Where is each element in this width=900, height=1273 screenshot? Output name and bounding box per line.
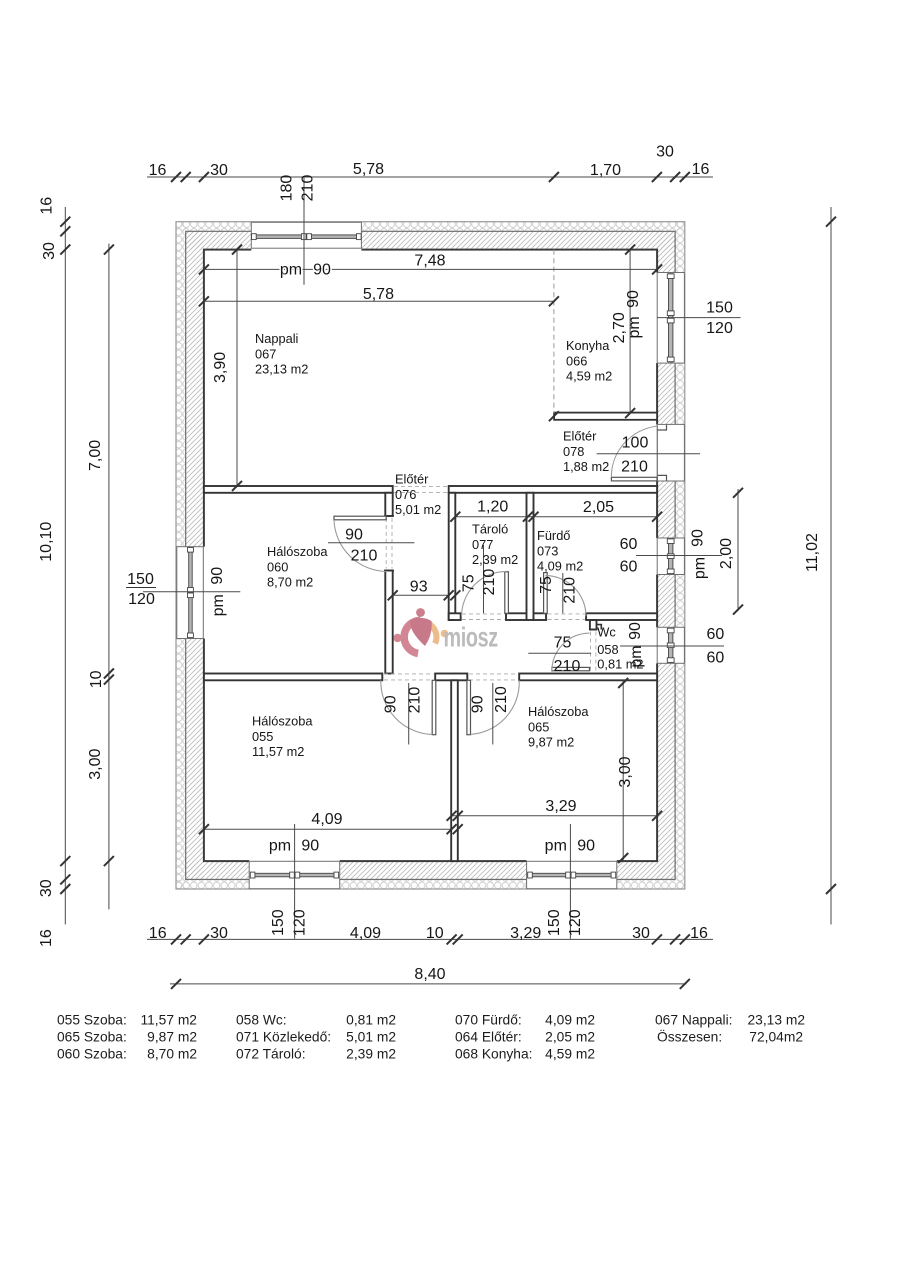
svg-text:pm: pm: [626, 316, 643, 338]
svg-text:pm: pm: [269, 838, 291, 855]
svg-text:4,09: 4,09: [311, 811, 342, 828]
svg-text:055: 055: [252, 729, 273, 744]
svg-text:060 Szoba:: 060 Szoba:: [57, 1047, 127, 1062]
svg-text:93: 93: [410, 579, 428, 596]
svg-text:058: 058: [597, 642, 618, 657]
svg-text:11,02: 11,02: [804, 533, 821, 572]
svg-text:210: 210: [621, 458, 648, 475]
svg-text:120: 120: [128, 591, 155, 608]
svg-text:4,59 m2: 4,59 m2: [566, 369, 612, 384]
svg-text:16: 16: [38, 929, 55, 947]
svg-text:90: 90: [577, 838, 595, 855]
svg-text:180: 180: [279, 175, 296, 202]
svg-text:120: 120: [291, 909, 308, 936]
svg-text:pm: pm: [280, 261, 302, 278]
svg-text:72,04m2: 72,04m2: [749, 1030, 803, 1045]
svg-text:5,01 m2: 5,01 m2: [395, 502, 441, 517]
svg-text:2,00: 2,00: [718, 538, 735, 569]
svg-text:30: 30: [632, 925, 650, 942]
svg-text:90: 90: [469, 695, 486, 713]
svg-text:8,40: 8,40: [414, 966, 445, 983]
svg-text:072 Tároló:: 072 Tároló:: [236, 1047, 306, 1062]
svg-text:077: 077: [472, 537, 493, 552]
svg-text:067 Nappali:: 067 Nappali:: [655, 1013, 732, 1028]
svg-text:30: 30: [210, 162, 228, 179]
svg-text:3,29: 3,29: [510, 925, 541, 942]
svg-text:066: 066: [566, 353, 587, 368]
svg-text:055 Szoba:: 055 Szoba:: [57, 1013, 127, 1028]
svg-text:10: 10: [426, 925, 444, 942]
svg-text:1,20: 1,20: [477, 499, 508, 516]
svg-text:2,05 m2: 2,05 m2: [545, 1030, 595, 1045]
svg-text:16: 16: [149, 925, 167, 942]
svg-text:pm: pm: [545, 838, 567, 855]
svg-text:210: 210: [351, 547, 378, 564]
svg-text:8,70 m2: 8,70 m2: [147, 1047, 197, 1062]
svg-text:23,13 m2: 23,13 m2: [747, 1013, 805, 1028]
svg-text:Nappali: Nappali: [255, 331, 298, 346]
svg-text:150: 150: [546, 909, 563, 936]
svg-text:90: 90: [345, 526, 363, 543]
svg-text:210: 210: [561, 577, 578, 604]
svg-text:120: 120: [567, 909, 584, 936]
svg-text:16: 16: [149, 162, 167, 179]
svg-text:90: 90: [209, 567, 226, 585]
svg-text:Konyha: Konyha: [566, 338, 610, 353]
svg-text:9,87 m2: 9,87 m2: [147, 1030, 197, 1045]
svg-text:Hálószoba: Hálószoba: [252, 714, 313, 729]
svg-text:pm: pm: [692, 557, 709, 579]
svg-text:Tároló: Tároló: [472, 522, 508, 537]
svg-text:10,10: 10,10: [38, 522, 55, 562]
svg-text:067: 067: [255, 346, 276, 361]
svg-text:7,48: 7,48: [414, 252, 445, 269]
svg-text:Hálószoba: Hálószoba: [528, 704, 589, 719]
svg-text:Hálószoba: Hálószoba: [267, 544, 328, 559]
svg-text:150: 150: [706, 299, 733, 316]
svg-text:Előtér: Előtér: [563, 429, 597, 444]
svg-text:10: 10: [88, 670, 105, 688]
svg-text:60: 60: [707, 626, 725, 643]
svg-text:210: 210: [481, 569, 498, 596]
svg-text:2,05: 2,05: [583, 499, 614, 516]
svg-text:11,57 m2: 11,57 m2: [140, 1013, 197, 1028]
svg-text:Összesen:: Összesen:: [657, 1028, 722, 1045]
svg-text:30: 30: [210, 925, 228, 942]
svg-text:1,88 m2: 1,88 m2: [563, 459, 609, 474]
svg-text:90: 90: [625, 290, 642, 308]
svg-text:210: 210: [300, 175, 317, 202]
svg-text:90: 90: [627, 622, 644, 640]
svg-text:071 Közlekedő:: 071 Közlekedő:: [236, 1030, 331, 1045]
svg-text:210: 210: [554, 658, 581, 675]
svg-text:90: 90: [301, 838, 319, 855]
svg-text:210: 210: [407, 687, 424, 714]
svg-text:16: 16: [690, 925, 708, 942]
svg-text:060: 060: [267, 559, 288, 574]
svg-text:16: 16: [692, 161, 710, 178]
svg-text:210: 210: [493, 686, 510, 713]
svg-text:90: 90: [383, 695, 400, 713]
svg-text:60: 60: [707, 649, 725, 666]
svg-text:4,09: 4,09: [350, 925, 381, 942]
svg-text:75: 75: [460, 574, 477, 592]
svg-text:7,00: 7,00: [87, 440, 104, 471]
svg-text:60: 60: [620, 558, 638, 575]
svg-text:miosz: miosz: [444, 622, 499, 653]
svg-text:30: 30: [656, 144, 674, 161]
svg-text:4,09 m2: 4,09 m2: [545, 1013, 595, 1028]
svg-text:Wc: Wc: [597, 625, 616, 640]
svg-text:150: 150: [127, 571, 154, 588]
svg-text:8,70 m2: 8,70 m2: [267, 575, 313, 590]
svg-text:75: 75: [538, 576, 555, 594]
svg-text:3,29: 3,29: [545, 798, 576, 815]
svg-text:11,57 m2: 11,57 m2: [252, 744, 304, 759]
svg-text:pm: pm: [210, 594, 227, 616]
svg-text:23,13 m2: 23,13 m2: [255, 362, 308, 377]
svg-text:3,90: 3,90: [212, 352, 229, 383]
svg-text:3,00: 3,00: [617, 756, 634, 787]
svg-text:60: 60: [620, 536, 638, 553]
svg-text:1,70: 1,70: [590, 162, 621, 179]
svg-text:4,09 m2: 4,09 m2: [537, 559, 583, 574]
svg-text:16: 16: [39, 197, 56, 215]
svg-text:064 Előtér:: 064 Előtér:: [455, 1030, 522, 1045]
svg-text:Előtér: Előtér: [395, 472, 429, 487]
svg-text:30: 30: [38, 879, 55, 897]
svg-text:150: 150: [270, 909, 287, 936]
svg-text:5,78: 5,78: [353, 161, 384, 178]
svg-text:073: 073: [537, 543, 558, 558]
svg-text:Fürdő: Fürdő: [537, 528, 570, 543]
svg-text:058 Wc:: 058 Wc:: [236, 1013, 287, 1028]
svg-text:068 Konyha:: 068 Konyha:: [455, 1047, 532, 1062]
svg-text:100: 100: [622, 434, 649, 451]
svg-text:065: 065: [528, 719, 549, 734]
svg-text:0,81 m2: 0,81 m2: [346, 1013, 396, 1028]
svg-text:070 Fürdő:: 070 Fürdő:: [455, 1013, 522, 1028]
svg-text:30: 30: [41, 242, 58, 260]
svg-text:90: 90: [313, 261, 331, 278]
svg-text:5,78: 5,78: [363, 286, 394, 303]
svg-text:076: 076: [395, 487, 416, 502]
svg-text:120: 120: [706, 320, 733, 337]
svg-text:5,01 m2: 5,01 m2: [346, 1030, 396, 1045]
svg-text:4,59 m2: 4,59 m2: [545, 1047, 595, 1062]
svg-text:078: 078: [563, 444, 584, 459]
svg-text:065 Szoba:: 065 Szoba:: [57, 1030, 127, 1045]
svg-text:9,87 m2: 9,87 m2: [528, 735, 574, 750]
svg-text:3,00: 3,00: [87, 749, 104, 780]
svg-text:75: 75: [554, 635, 572, 652]
svg-text:2,39 m2: 2,39 m2: [346, 1047, 396, 1062]
svg-text:2,39 m2: 2,39 m2: [472, 552, 518, 567]
svg-text:0,81 m2: 0,81 m2: [597, 657, 643, 672]
svg-text:90: 90: [690, 529, 707, 547]
